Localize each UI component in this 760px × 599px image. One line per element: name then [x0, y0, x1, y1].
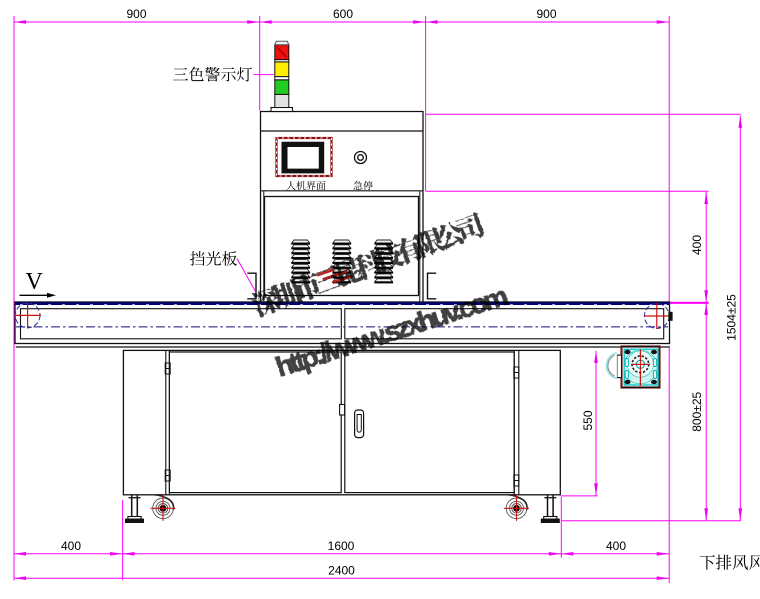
- svg-text:2400: 2400: [328, 563, 355, 577]
- svg-text:400: 400: [690, 235, 704, 255]
- svg-text:900: 900: [536, 7, 556, 21]
- svg-text:900: 900: [126, 7, 146, 21]
- svg-text:550: 550: [581, 410, 595, 430]
- svg-text:800±25: 800±25: [690, 392, 704, 432]
- svg-text:600: 600: [333, 7, 353, 21]
- svg-text:1504±25: 1504±25: [725, 294, 739, 341]
- svg-text:1600: 1600: [328, 539, 355, 553]
- svg-text:400: 400: [61, 539, 81, 553]
- svg-text:400: 400: [606, 539, 626, 553]
- svg-text:V: V: [26, 269, 44, 295]
